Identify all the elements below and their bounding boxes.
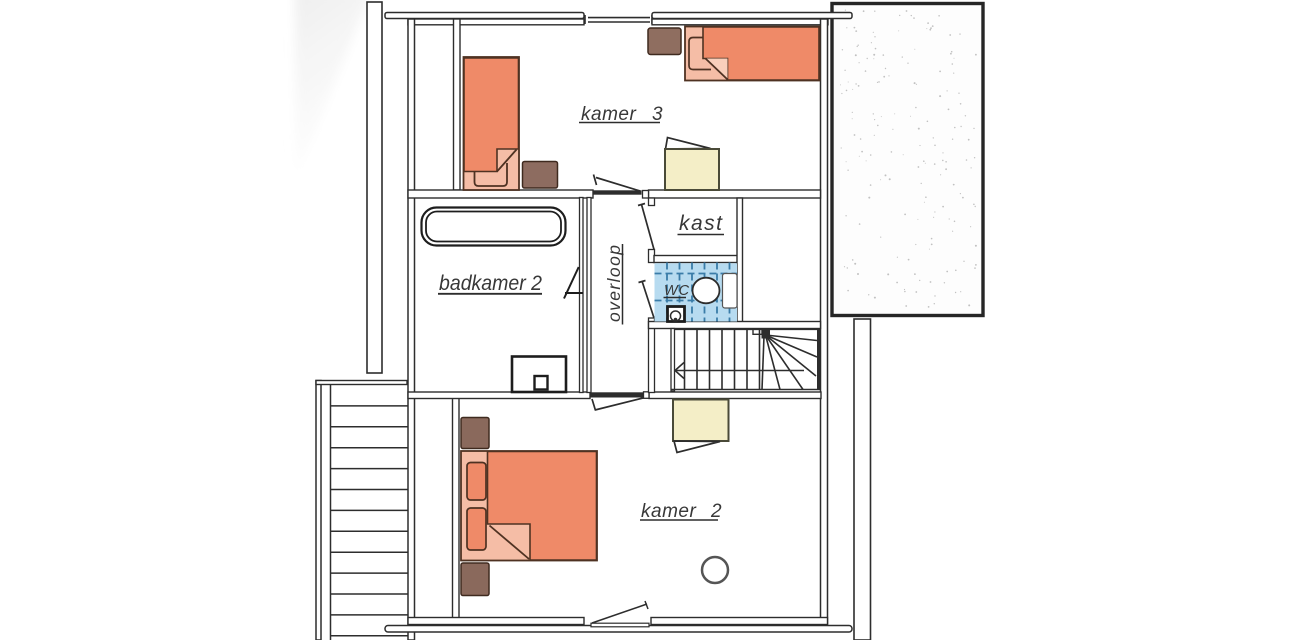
svg-text:WC: WC: [664, 283, 690, 299]
svg-text:2: 2: [710, 501, 722, 522]
svg-text:kamer: kamer: [641, 501, 696, 522]
svg-text:kast: kast: [679, 212, 724, 235]
svg-text:overloop: overloop: [604, 244, 624, 322]
svg-text:badkamer 2: badkamer 2: [439, 272, 542, 295]
